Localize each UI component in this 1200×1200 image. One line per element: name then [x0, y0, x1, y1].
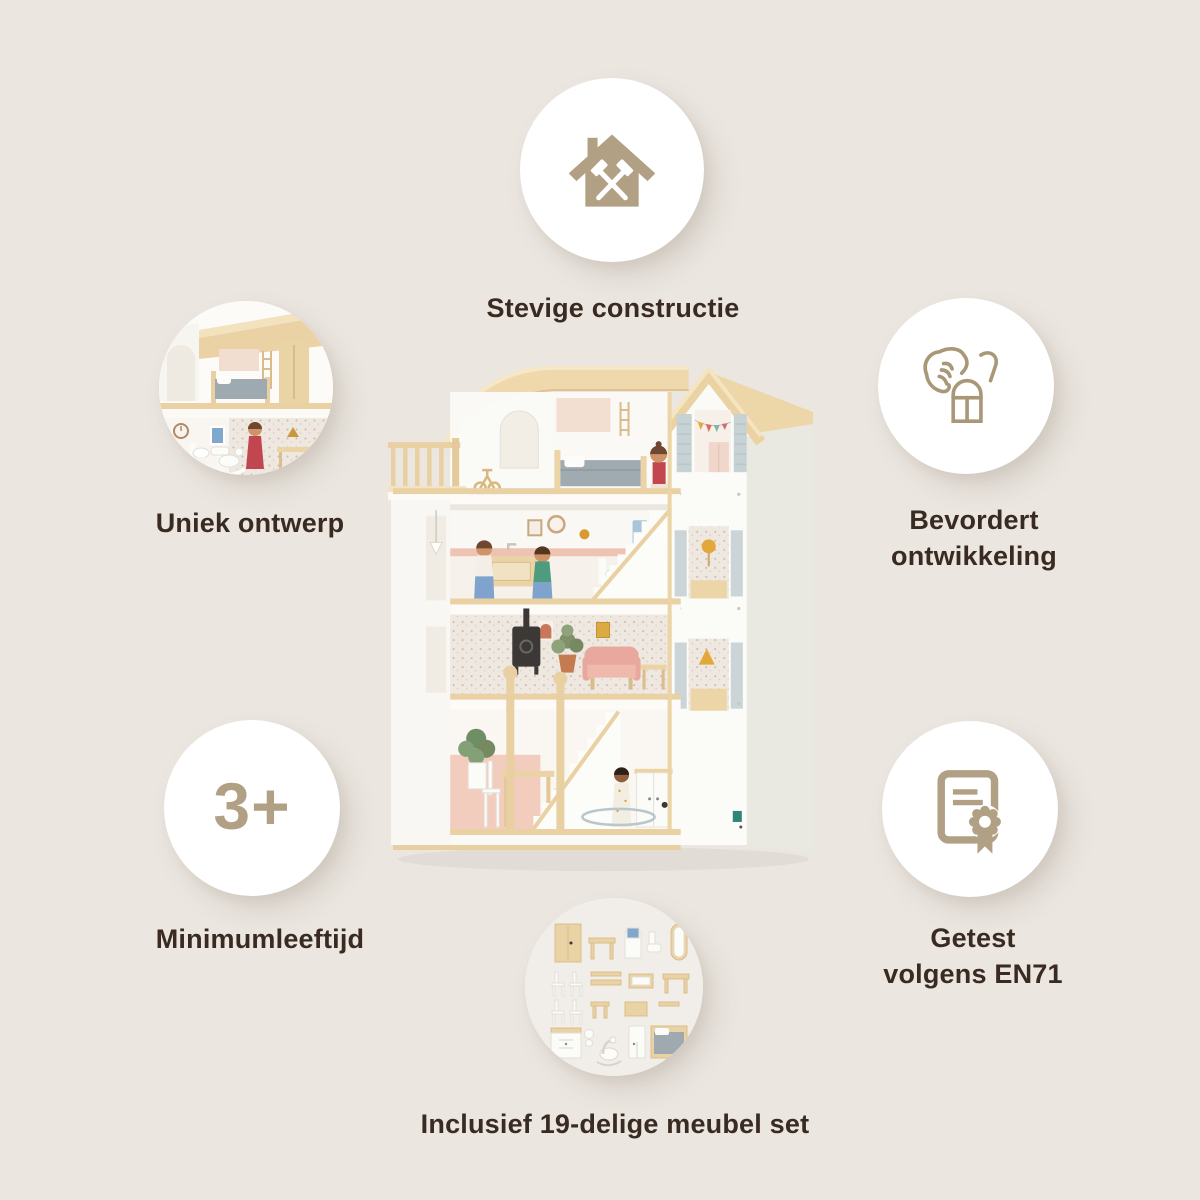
- feature-circle-furniture: [525, 898, 703, 1076]
- tested-line2: volgens EN71: [773, 956, 1173, 992]
- house-hammers-icon: [562, 120, 662, 220]
- development-label: Bevordert ontwikkeling: [774, 502, 1174, 574]
- feature-circle-construction: [520, 78, 704, 262]
- hand-block-icon: [918, 338, 1014, 434]
- development-line2: ontwikkeling: [774, 538, 1174, 574]
- certificate-icon: [922, 761, 1018, 857]
- tested-line1: Getest: [773, 920, 1173, 956]
- dollhouse-illustration: [388, 356, 824, 886]
- furniture-photo: [525, 898, 703, 1076]
- development-line1: Bevordert: [774, 502, 1174, 538]
- age-badge: 3+: [213, 773, 290, 839]
- feature-circle-design: [159, 301, 333, 475]
- furniture-label: Inclusief 19-delige meubel set: [315, 1106, 915, 1142]
- design-photo: [159, 301, 333, 475]
- product-image: [388, 356, 824, 886]
- feature-circle-tested: [882, 721, 1058, 897]
- feature-circle-development: [878, 298, 1054, 474]
- tested-label: Getest volgens EN71: [773, 920, 1173, 992]
- feature-circle-age: 3+: [164, 720, 340, 896]
- age-label: Minimumleeftijd: [60, 921, 460, 957]
- construction-label: Stevige constructie: [413, 290, 813, 326]
